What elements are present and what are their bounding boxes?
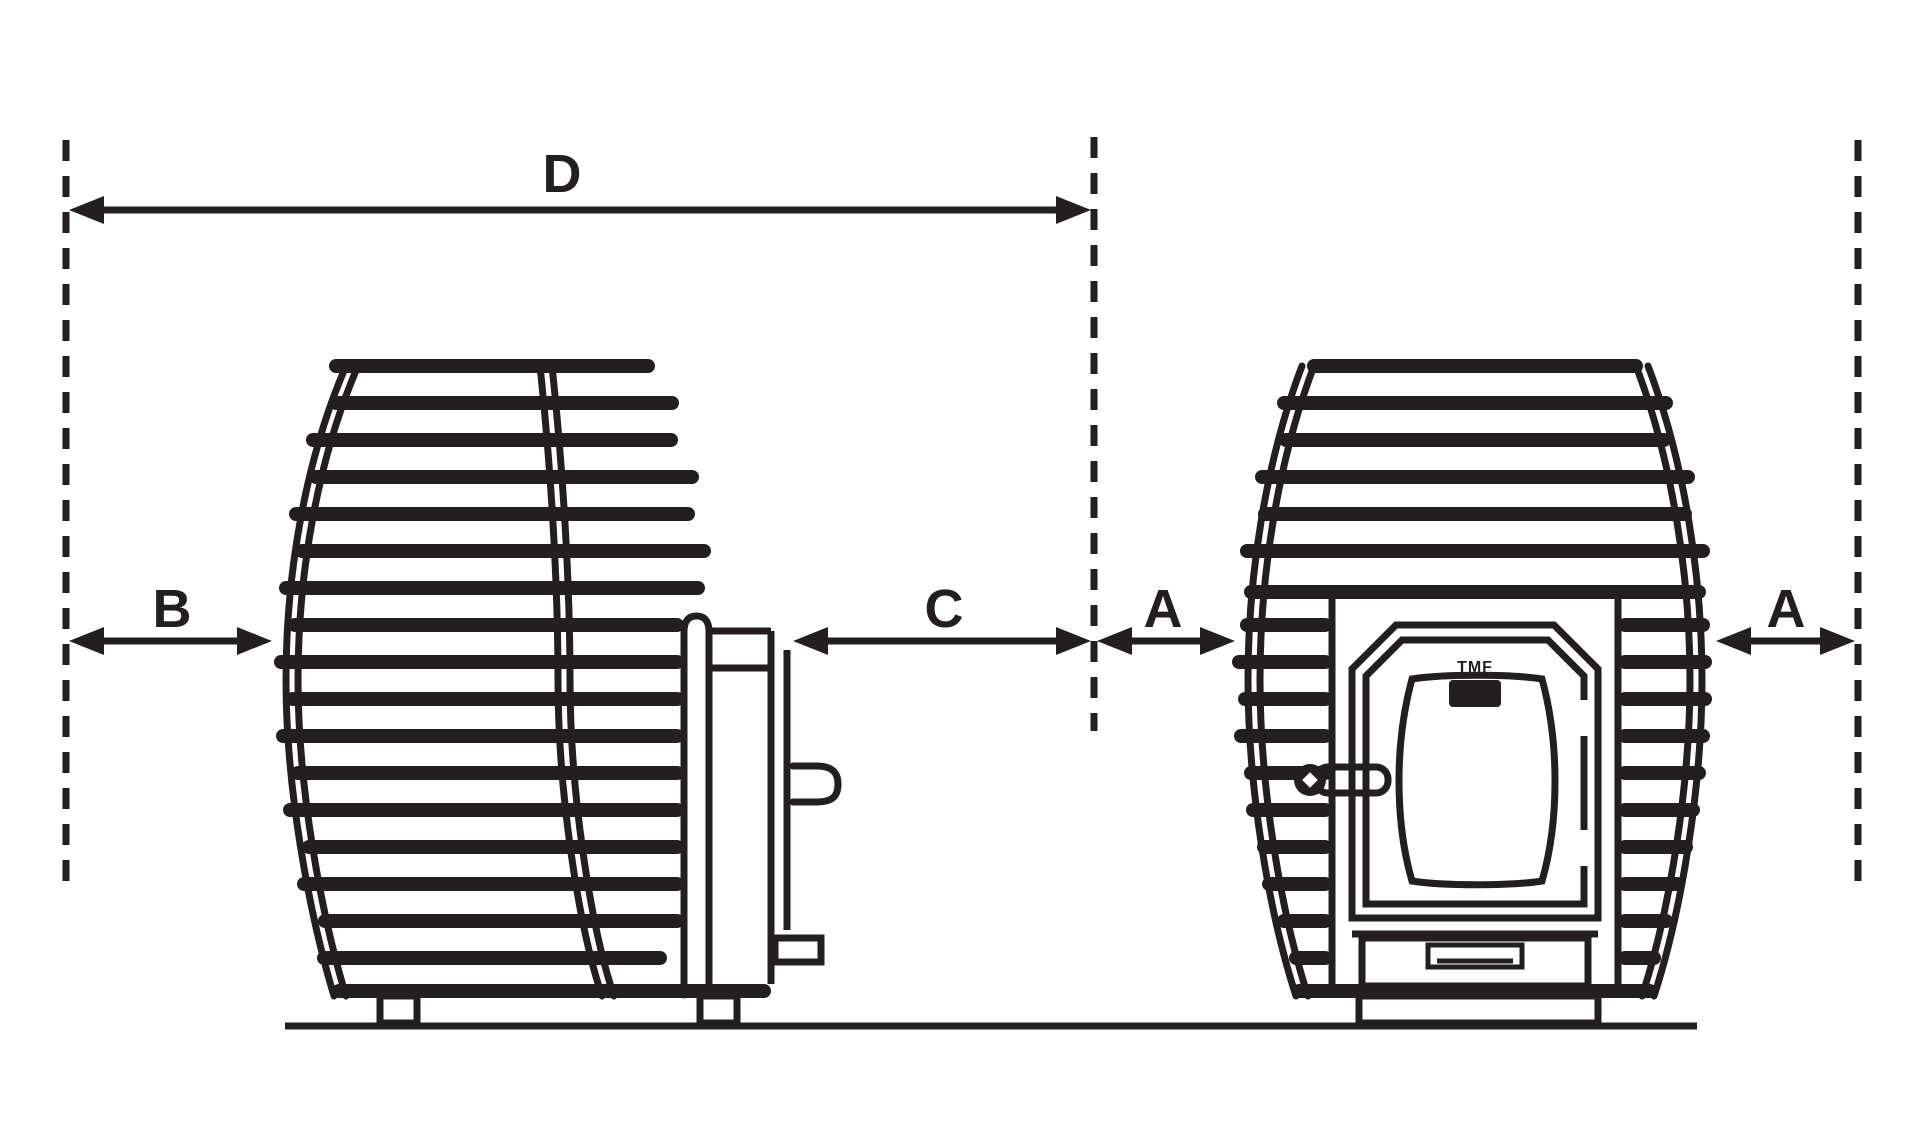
- arrowhead-left: [793, 627, 828, 655]
- cage-slat: [276, 729, 684, 743]
- cage-seam-left: [286, 366, 358, 996]
- left-stove-side-view: [274, 359, 838, 1023]
- drawer-slot: [1428, 945, 1522, 967]
- arrowhead-right: [1200, 627, 1235, 655]
- brand-logo-text: TMF: [1457, 659, 1493, 676]
- cage-slat: [1234, 729, 1332, 743]
- cage-slat: [329, 396, 679, 410]
- cage-slat: [317, 951, 667, 965]
- hinge-mark: [1580, 700, 1588, 736]
- arrowhead-left: [69, 196, 104, 224]
- cage-seam-left: [1248, 366, 1314, 996]
- cage-seam-right: [1636, 366, 1702, 996]
- cage-slat: [1289, 951, 1332, 965]
- side-panel: [684, 616, 838, 995]
- cage-slat: [291, 766, 684, 780]
- cage-slat: [1618, 840, 1693, 854]
- ash-drawer: [1362, 938, 1588, 986]
- cage-slat: [1238, 692, 1332, 706]
- arrowhead-left: [1716, 627, 1751, 655]
- arrowhead-right: [1820, 627, 1855, 655]
- dim-label-a-middle: A: [1144, 579, 1183, 639]
- arrowhead-right: [1056, 627, 1091, 655]
- cage-slat: [1618, 692, 1712, 706]
- dimension-d: D: [69, 144, 1091, 224]
- cage-slat: [283, 803, 684, 817]
- cage-slat: [1277, 914, 1332, 928]
- cage-slat: [274, 655, 684, 669]
- cage-seam-right: [540, 366, 614, 996]
- stove-clearance-diagram: D B C A A: [0, 0, 1920, 1134]
- cage-slat: [1618, 914, 1673, 928]
- cage-slat: [1307, 359, 1643, 373]
- cage-slat: [1618, 766, 1706, 780]
- panel-channel: [684, 616, 709, 995]
- dim-label-d: D: [543, 144, 582, 204]
- brand-logo-block: [1449, 680, 1501, 707]
- cage-slat: [1618, 618, 1710, 632]
- arrowhead-right: [1056, 196, 1091, 224]
- cage-slat: [1257, 840, 1332, 854]
- right-stove-pedestal: [1359, 996, 1598, 1023]
- cage-slat: [309, 470, 699, 484]
- dimension-c: C: [793, 579, 1091, 655]
- cage-slat: [318, 914, 684, 928]
- right-stove-front-view: TMF: [1232, 359, 1712, 1023]
- panel-tab: [775, 938, 821, 962]
- arrowhead-left: [69, 627, 104, 655]
- cage-slat: [1618, 951, 1661, 965]
- cage-slat: [279, 581, 705, 595]
- cage-slat: [1618, 729, 1710, 743]
- dimension-a-middle: A: [1097, 579, 1235, 655]
- foot: [380, 996, 417, 1023]
- cage-slat: [1279, 433, 1671, 447]
- cage-slat: [306, 433, 678, 447]
- cage-slat: [297, 877, 684, 891]
- cage-slat: [288, 618, 684, 632]
- cage-slat: [1240, 618, 1332, 632]
- cage-slat: [1262, 877, 1332, 891]
- cage-slat: [1277, 396, 1673, 410]
- cage-slat: [1255, 470, 1695, 484]
- cage-slat: [1618, 655, 1712, 669]
- hinge-mark: [1580, 830, 1588, 866]
- cage-slat: [1618, 877, 1684, 891]
- cage-slat: [286, 692, 684, 706]
- arrowhead-left: [1097, 627, 1132, 655]
- dim-label-a-right: A: [1767, 579, 1806, 639]
- panel-handle: [793, 766, 838, 802]
- diagram-canvas: D B C A A: [0, 0, 1920, 1134]
- cage-slat: [1618, 803, 1700, 817]
- dimension-a-right: A: [1716, 579, 1855, 655]
- cage-slat: [295, 544, 711, 558]
- dimension-b: B: [69, 579, 272, 655]
- dim-label-b: B: [153, 579, 192, 639]
- pedestal-base: [1359, 996, 1598, 1023]
- brand-logo: TMF: [1449, 659, 1501, 707]
- cage-slat: [1232, 655, 1332, 669]
- foot: [700, 996, 737, 1023]
- cage-slat: [329, 359, 655, 373]
- cage-slat: [1246, 803, 1332, 817]
- left-stove-feet: [380, 996, 737, 1023]
- door-handle: [1294, 764, 1388, 796]
- firebox-facade: TMF: [1294, 592, 1618, 991]
- facade-top-bar: [1244, 585, 1706, 599]
- cage-slat: [302, 840, 684, 854]
- cage-slat: [289, 507, 695, 521]
- arrowhead-right: [237, 627, 272, 655]
- stone-cage-slats: [274, 359, 771, 998]
- cage-slat: [1258, 507, 1692, 521]
- dim-label-c: C: [925, 579, 964, 639]
- cage-slat: [1240, 544, 1710, 558]
